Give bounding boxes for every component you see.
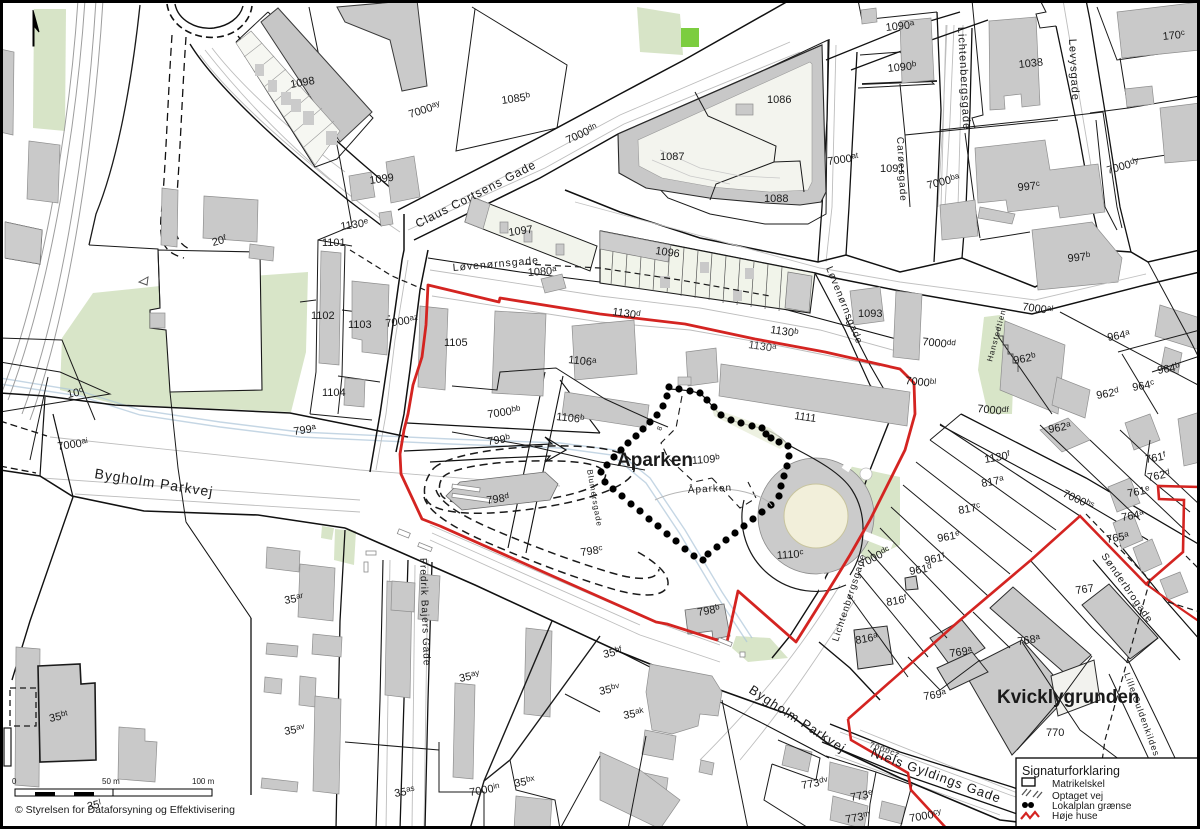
- svg-text:1088: 1088: [764, 193, 788, 205]
- svg-text:1101: 1101: [322, 237, 346, 249]
- svg-text:1104: 1104: [322, 387, 346, 399]
- svg-text:Aparken: Aparken: [617, 450, 693, 471]
- svg-text:Signaturforklaring: Signaturforklaring: [1022, 764, 1120, 778]
- svg-text:1038: 1038: [1018, 56, 1044, 70]
- svg-text:100 m: 100 m: [192, 777, 215, 786]
- svg-text:1087: 1087: [660, 151, 684, 163]
- svg-text:770: 770: [1046, 727, 1064, 739]
- svg-text:1103: 1103: [348, 319, 372, 331]
- svg-text:1110c: 1110c: [776, 547, 804, 562]
- svg-text:0: 0: [12, 777, 17, 786]
- svg-text:1086: 1086: [767, 94, 791, 106]
- svg-text:Matrikelskel: Matrikelskel: [1052, 779, 1105, 790]
- svg-text:Høje huse: Høje huse: [1052, 811, 1098, 822]
- svg-text:1105: 1105: [444, 337, 468, 349]
- svg-text:767: 767: [1075, 583, 1095, 597]
- svg-text:Kvicklygrunden: Kvicklygrunden: [997, 687, 1140, 708]
- svg-text:1093: 1093: [858, 308, 882, 320]
- svg-text:© Styrelsen for Dataforsyning: © Styrelsen for Dataforsyning og Effekti…: [15, 804, 235, 816]
- svg-text:1102: 1102: [311, 310, 335, 322]
- svg-text:50 m: 50 m: [102, 777, 120, 786]
